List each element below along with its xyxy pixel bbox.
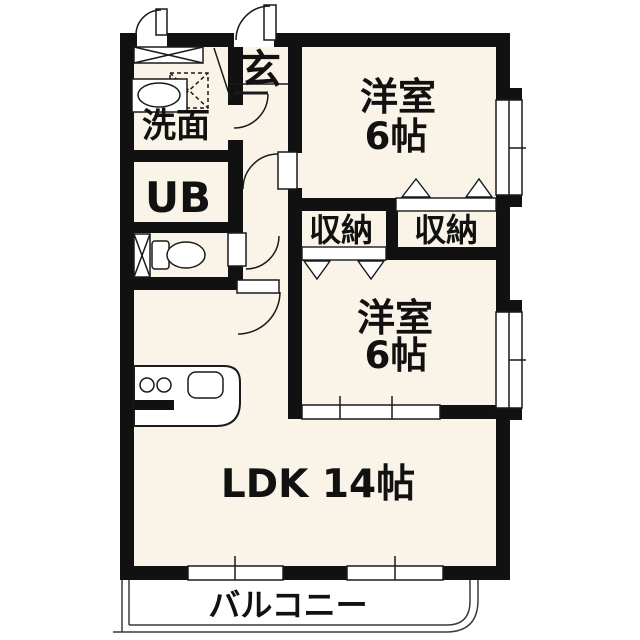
wall-hall-right-upper [288, 47, 302, 153]
wall-washroom-ub [134, 150, 228, 162]
window-cap [496, 300, 522, 312]
wall-bottom-1 [120, 566, 188, 580]
stove-burner-icon [157, 378, 171, 392]
storage-door-leaf [156, 9, 167, 35]
sliding-door-band [302, 405, 440, 419]
floor-plan-canvas: 玄 洗面 UB 収納 収納 洋室 6帖 洋室 6帖 LDK 14帖 バルコニー [0, 0, 640, 640]
wall-hall-left [228, 140, 243, 233]
wall-bottom-2 [283, 566, 347, 580]
bedroom1-door-leaf [278, 152, 297, 189]
bedroom1-name-label: 洋室 [360, 75, 436, 119]
kitchen-wall-stub [134, 400, 174, 410]
unit-bath-label: UB [145, 173, 211, 222]
wall-bedroom2-bottom [440, 405, 496, 419]
wall-ub-toilet [134, 222, 228, 233]
wall-top [120, 33, 510, 47]
floor-plan: 玄 洗面 UB 収納 収納 洋室 6帖 洋室 6帖 LDK 14帖 バルコニー [0, 0, 640, 640]
kitchen-counter [134, 366, 240, 426]
window-cap [496, 408, 522, 420]
window-cap [496, 195, 522, 207]
entrance-door-leaf [264, 5, 276, 40]
bedroom2-size-label: 6帖 [365, 334, 428, 377]
wall-bottom-3 [443, 566, 510, 580]
window-cap [496, 88, 522, 100]
wall-bedroom1-bottom [288, 198, 398, 211]
closet-right-door-band [396, 198, 496, 211]
toilet-icon [167, 242, 205, 268]
wall-toilet-ldk [134, 277, 228, 290]
kitchen [134, 366, 240, 426]
genkan-label: 玄 [241, 47, 281, 93]
ldk-door-leaf [237, 280, 279, 293]
bathroom-sink-icon [138, 83, 180, 107]
washroom-label: 洗面 [142, 106, 210, 146]
wall-hall-right-lower [288, 188, 302, 419]
balcony-label: バルコニー [208, 586, 367, 624]
bedroom1-size-label: 6帖 [365, 115, 428, 158]
kitchen-sink-icon [188, 372, 223, 398]
wall-left [120, 33, 134, 580]
toilet-door-leaf [228, 233, 246, 266]
closet-left-label: 収納 [309, 211, 373, 249]
closet-right-label: 収納 [414, 211, 478, 249]
ldk-label: LDK 14帖 [221, 462, 415, 507]
stove-burner-icon [140, 378, 154, 392]
